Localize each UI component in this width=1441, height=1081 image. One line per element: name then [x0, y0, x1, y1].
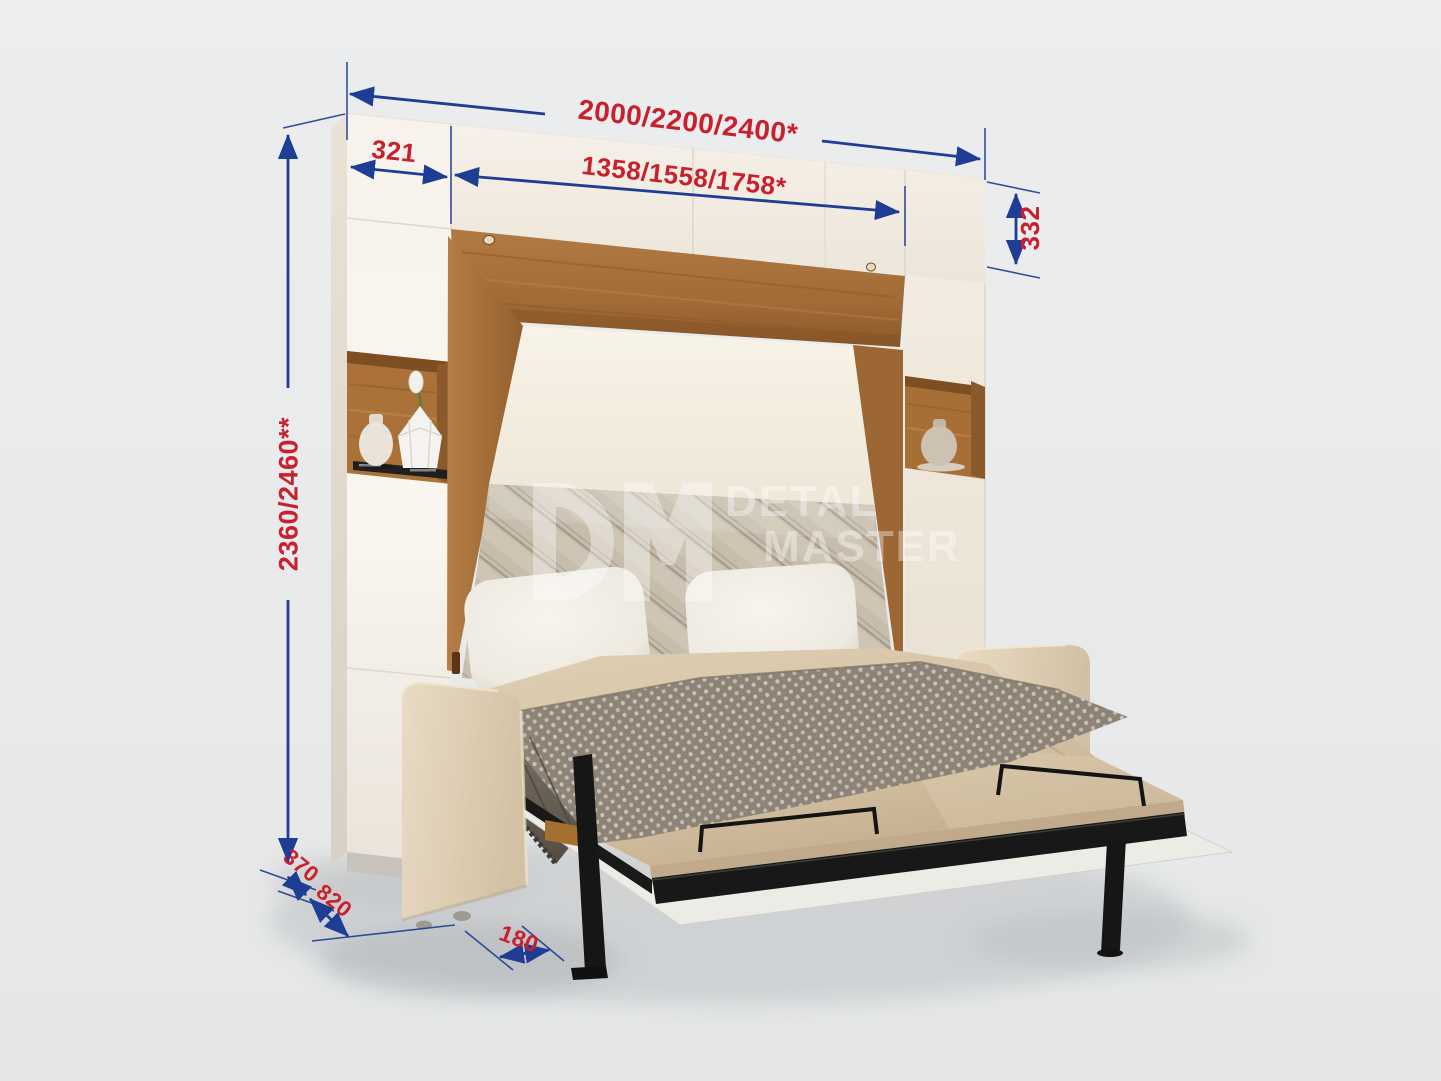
tulip-flower: [409, 371, 423, 393]
left-niche: [347, 351, 451, 484]
dim-total-height-label: 2360/2460**: [276, 417, 303, 571]
watermark-line1: DETAL: [725, 480, 878, 524]
bottle-decor: [452, 652, 460, 674]
product-dimension-diagram: 2000/2200/2400* 321 1358/1558/1758* 332 …: [0, 0, 1441, 1081]
dim-left-section-width-label: 321: [370, 136, 417, 167]
dim-line-total-width-left: [350, 94, 545, 114]
watermark-line2: MASTER: [763, 525, 961, 569]
dim-line-total-width-right: [822, 141, 980, 159]
dim-upper-cabinet-height-label: 332: [1017, 206, 1043, 251]
right-vase: [921, 426, 957, 466]
right-niche: [905, 376, 985, 479]
sofa-foot-left: [453, 911, 471, 921]
light-hole-right: [867, 263, 876, 271]
light-hole-left: [484, 236, 495, 245]
furniture-render: [0, 0, 1441, 1081]
sofa-armrest-left: [402, 683, 527, 930]
